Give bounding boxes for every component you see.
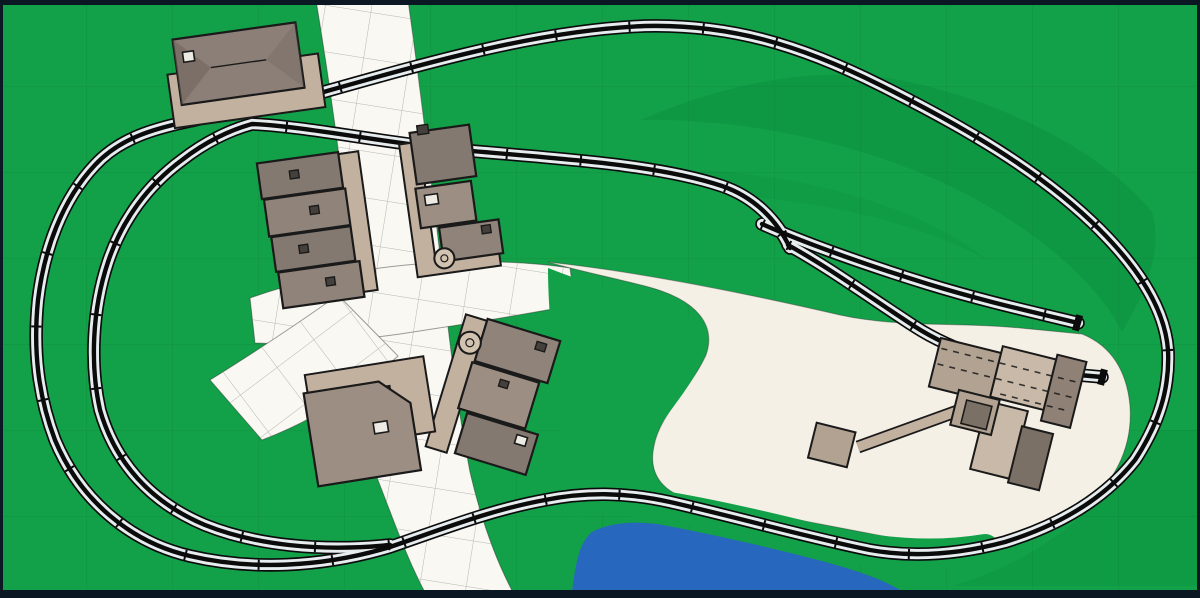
shop-east-2 bbox=[415, 181, 476, 228]
track-plan-canvas bbox=[0, 0, 1200, 598]
chimney-icon bbox=[481, 225, 491, 234]
chimney-icon bbox=[309, 205, 319, 214]
door-icon bbox=[424, 194, 438, 206]
chimney-icon bbox=[325, 277, 335, 286]
chimney-icon bbox=[289, 170, 299, 179]
chimney-icon bbox=[299, 244, 309, 253]
warehouse bbox=[301, 356, 441, 486]
station-chimney bbox=[182, 51, 194, 62]
plant-hopper-pit bbox=[961, 400, 992, 430]
chimney-icon bbox=[417, 124, 429, 134]
track-plan-svg bbox=[0, 0, 1200, 598]
warehouse-chimney bbox=[373, 421, 389, 434]
